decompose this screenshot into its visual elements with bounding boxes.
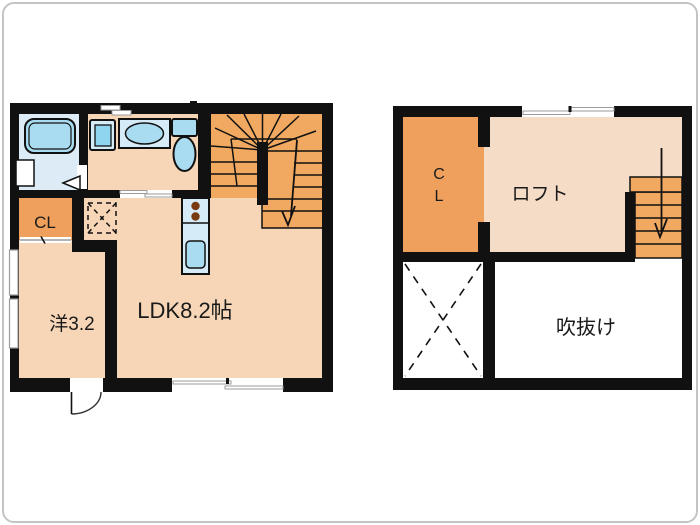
label-closet-2f-l: L — [435, 188, 444, 205]
window-left-lower — [10, 299, 19, 348]
entrance-door — [70, 378, 103, 414]
toilet-bowl — [174, 137, 196, 171]
bath-counter — [16, 160, 34, 186]
label-western-room: 洋3.2 — [49, 313, 94, 335]
staircase-2f — [635, 192, 682, 258]
window-ldk-south — [172, 378, 283, 392]
floor2-plan: C L ロフト 吹抜け — [393, 106, 692, 390]
washroom-sliding-door-panel-1 — [120, 191, 147, 194]
label-void: 吹抜け — [556, 316, 616, 339]
wall-cl-right — [72, 190, 84, 245]
washroom-sliding-door-panel-2 — [145, 194, 172, 197]
label-ldk: LDK8.2帖 — [137, 298, 232, 323]
floorplan-canvas: CL LDK8.2帖 洋3.2 — [0, 0, 700, 525]
vanity-sink-bowl — [126, 123, 164, 144]
staircase-2f-top-step — [630, 177, 682, 192]
floorplan-image: CL LDK8.2帖 洋3.2 — [0, 0, 700, 525]
window-top-2f — [522, 106, 614, 117]
washing-machine-pan-inner — [95, 125, 111, 146]
closet-2f — [403, 117, 484, 252]
wall-washroom-right — [198, 103, 211, 198]
floor1-plan: CL LDK8.2帖 洋3.2 — [10, 101, 334, 414]
window-left-upper — [10, 250, 19, 295]
label-closet-1f: CL — [34, 213, 56, 232]
wall-closet2f-stub-top — [478, 117, 490, 147]
wall-loft-bottom — [393, 252, 635, 262]
burner-2 — [191, 212, 199, 220]
label-closet-2f-c: C — [433, 166, 445, 183]
burner-1 — [191, 202, 199, 210]
wall-stairs2f-left — [625, 192, 635, 262]
label-loft: ロフト — [511, 184, 568, 205]
staircase-1f-center-wall — [257, 142, 268, 205]
kitchen-sink — [186, 241, 205, 268]
pillar-mark — [190, 101, 197, 109]
wall-western-right — [105, 245, 117, 378]
toilet-tank — [172, 119, 197, 136]
